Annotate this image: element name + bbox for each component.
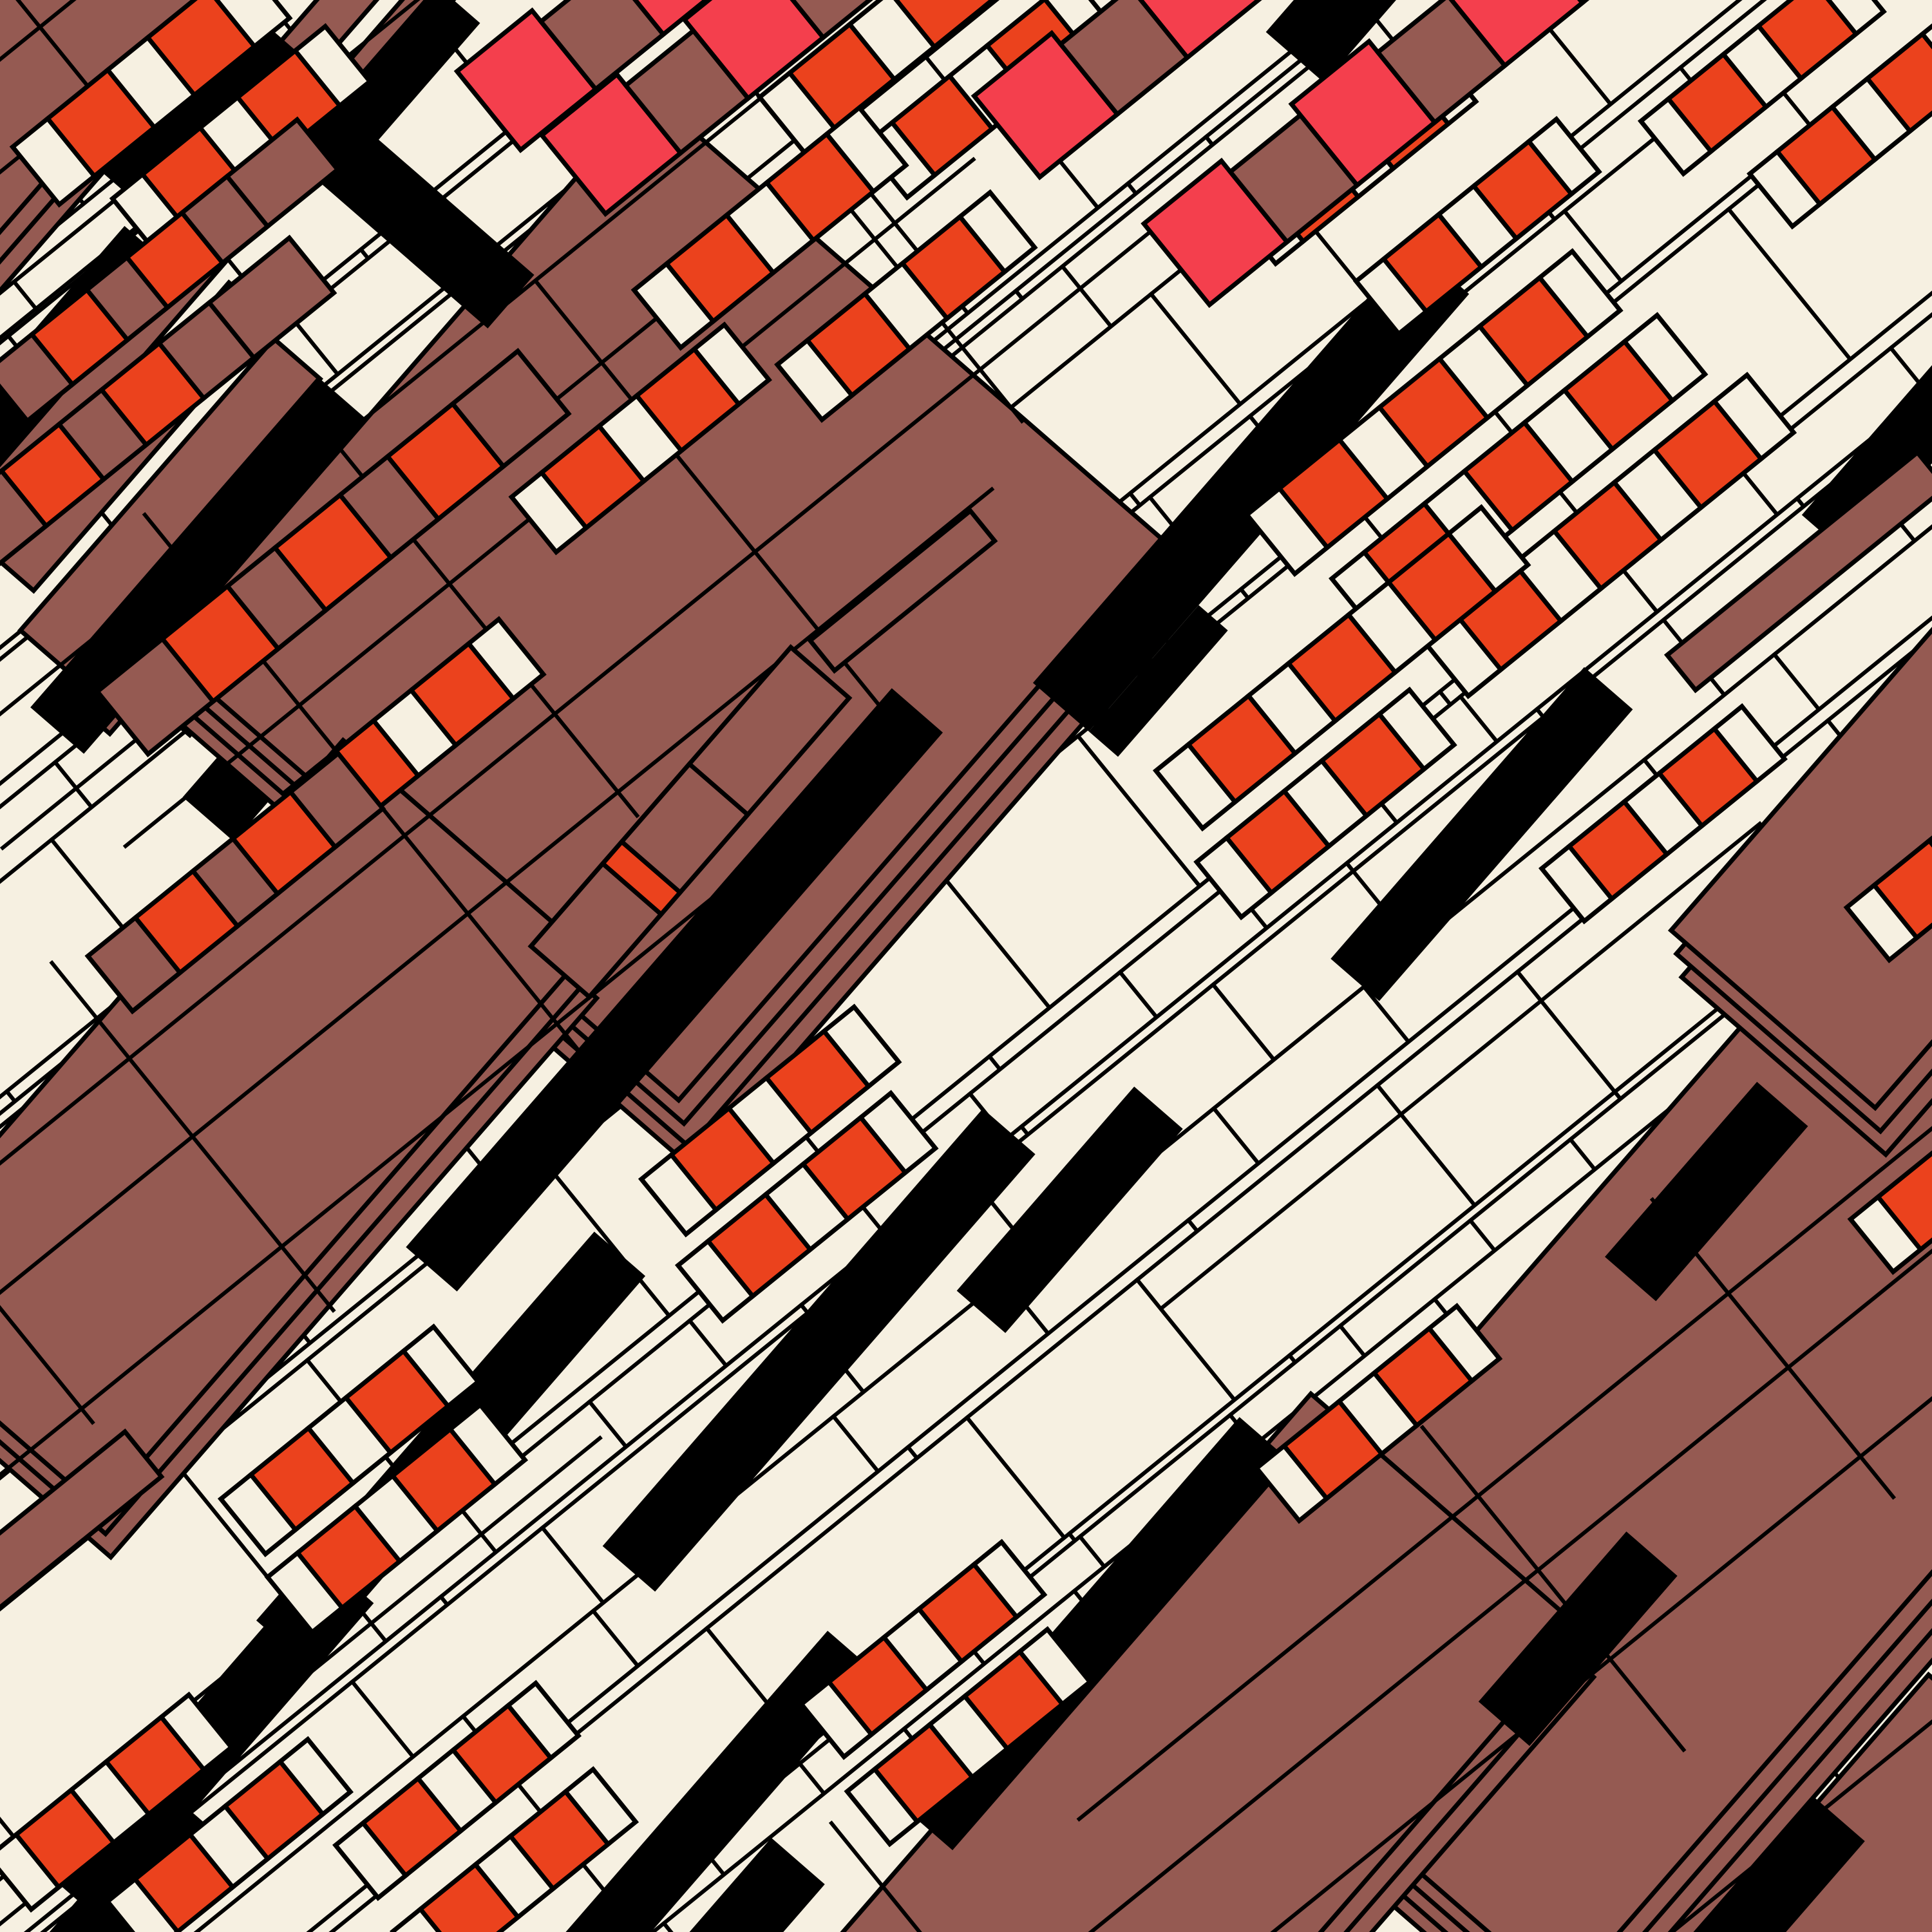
artwork-canvas (0, 0, 1932, 1932)
generative-art-svg (0, 0, 1932, 1932)
